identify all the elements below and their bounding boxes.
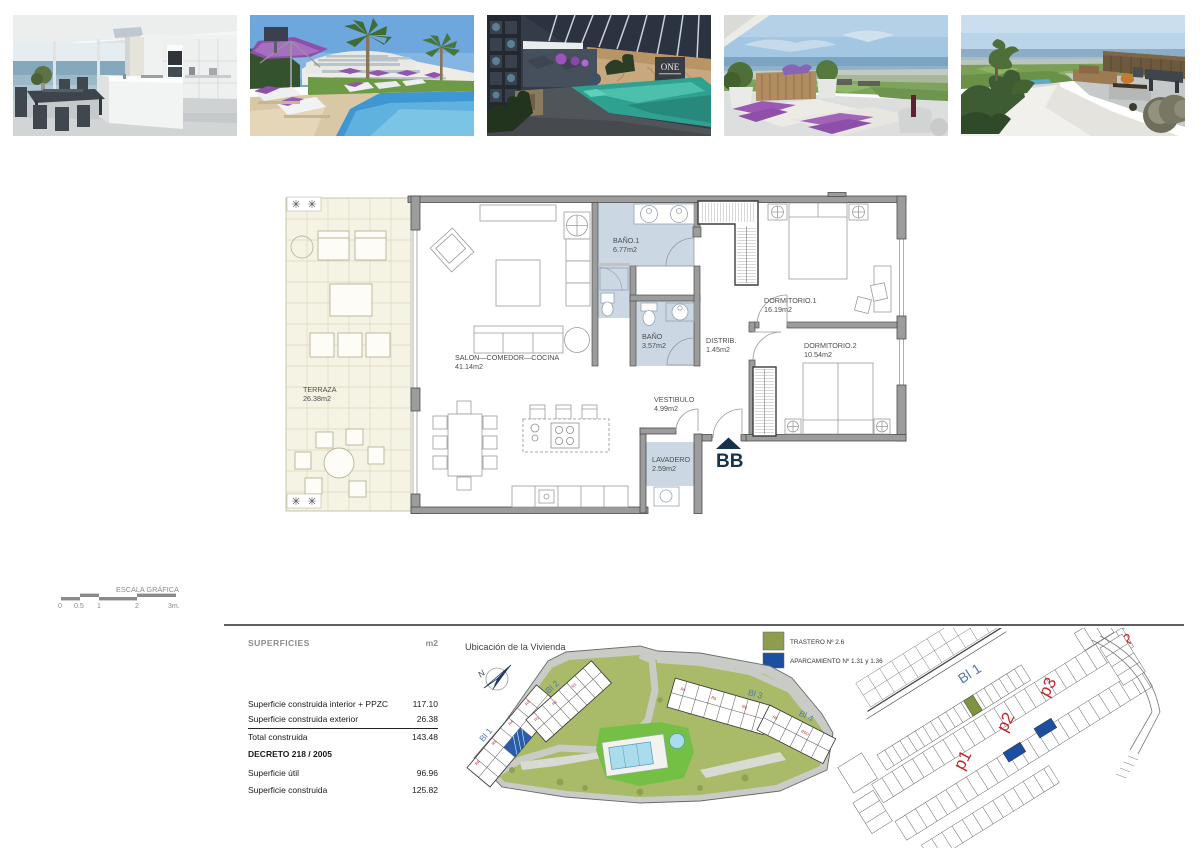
svg-text:3.57m2: 3.57m2 bbox=[642, 341, 666, 350]
svg-text:1: 1 bbox=[97, 603, 101, 610]
svg-text:10.54m2: 10.54m2 bbox=[804, 350, 832, 359]
svg-text:26.38m2: 26.38m2 bbox=[303, 394, 331, 403]
svg-text:DORMITORIO.2: DORMITORIO.2 bbox=[804, 341, 857, 350]
svg-text:2: 2 bbox=[135, 603, 139, 610]
svg-text:6.77m2: 6.77m2 bbox=[613, 245, 637, 254]
svg-text:LAVADERO: LAVADERO bbox=[652, 455, 690, 464]
svg-text:DORMITORIO.1: DORMITORIO.1 bbox=[764, 296, 817, 305]
svg-text:16.19m2: 16.19m2 bbox=[764, 305, 792, 314]
svg-text:ESCALA GRÁFICA: ESCALA GRÁFICA bbox=[116, 585, 179, 594]
svg-text:SALON—COMEDOR—COCINA: SALON—COMEDOR—COCINA bbox=[455, 353, 559, 362]
svg-text:BB: BB bbox=[716, 451, 743, 472]
svg-text:BAÑO: BAÑO bbox=[642, 332, 663, 341]
svg-text:TERRAZA: TERRAZA bbox=[303, 385, 337, 394]
svg-text:VESTIBULO: VESTIBULO bbox=[654, 395, 695, 404]
svg-text:0: 0 bbox=[58, 603, 62, 610]
svg-text:ONE: ONE bbox=[661, 62, 680, 72]
svg-text:3m.: 3m. bbox=[168, 603, 180, 610]
svg-text:1.45m2: 1.45m2 bbox=[706, 345, 730, 354]
svg-text:2.59m2: 2.59m2 bbox=[652, 464, 676, 473]
svg-text:BAÑO.1: BAÑO.1 bbox=[613, 236, 639, 245]
svg-text:Bl 1: Bl 1 bbox=[955, 660, 984, 687]
svg-text:TRASTERO Nº 2.6: TRASTERO Nº 2.6 bbox=[790, 639, 845, 646]
svg-text:0.5: 0.5 bbox=[74, 603, 84, 610]
svg-text:4.99m2: 4.99m2 bbox=[654, 404, 678, 413]
svg-text:41.14m2: 41.14m2 bbox=[455, 362, 483, 371]
svg-text:DISTRIB.: DISTRIB. bbox=[706, 336, 736, 345]
svg-text:APARCAMIENTO Nº 1.31 y 1.36: APARCAMIENTO Nº 1.31 y 1.36 bbox=[790, 658, 883, 665]
svg-text:Ubicación de la Vivienda: Ubicación de la Vivienda bbox=[465, 642, 566, 652]
